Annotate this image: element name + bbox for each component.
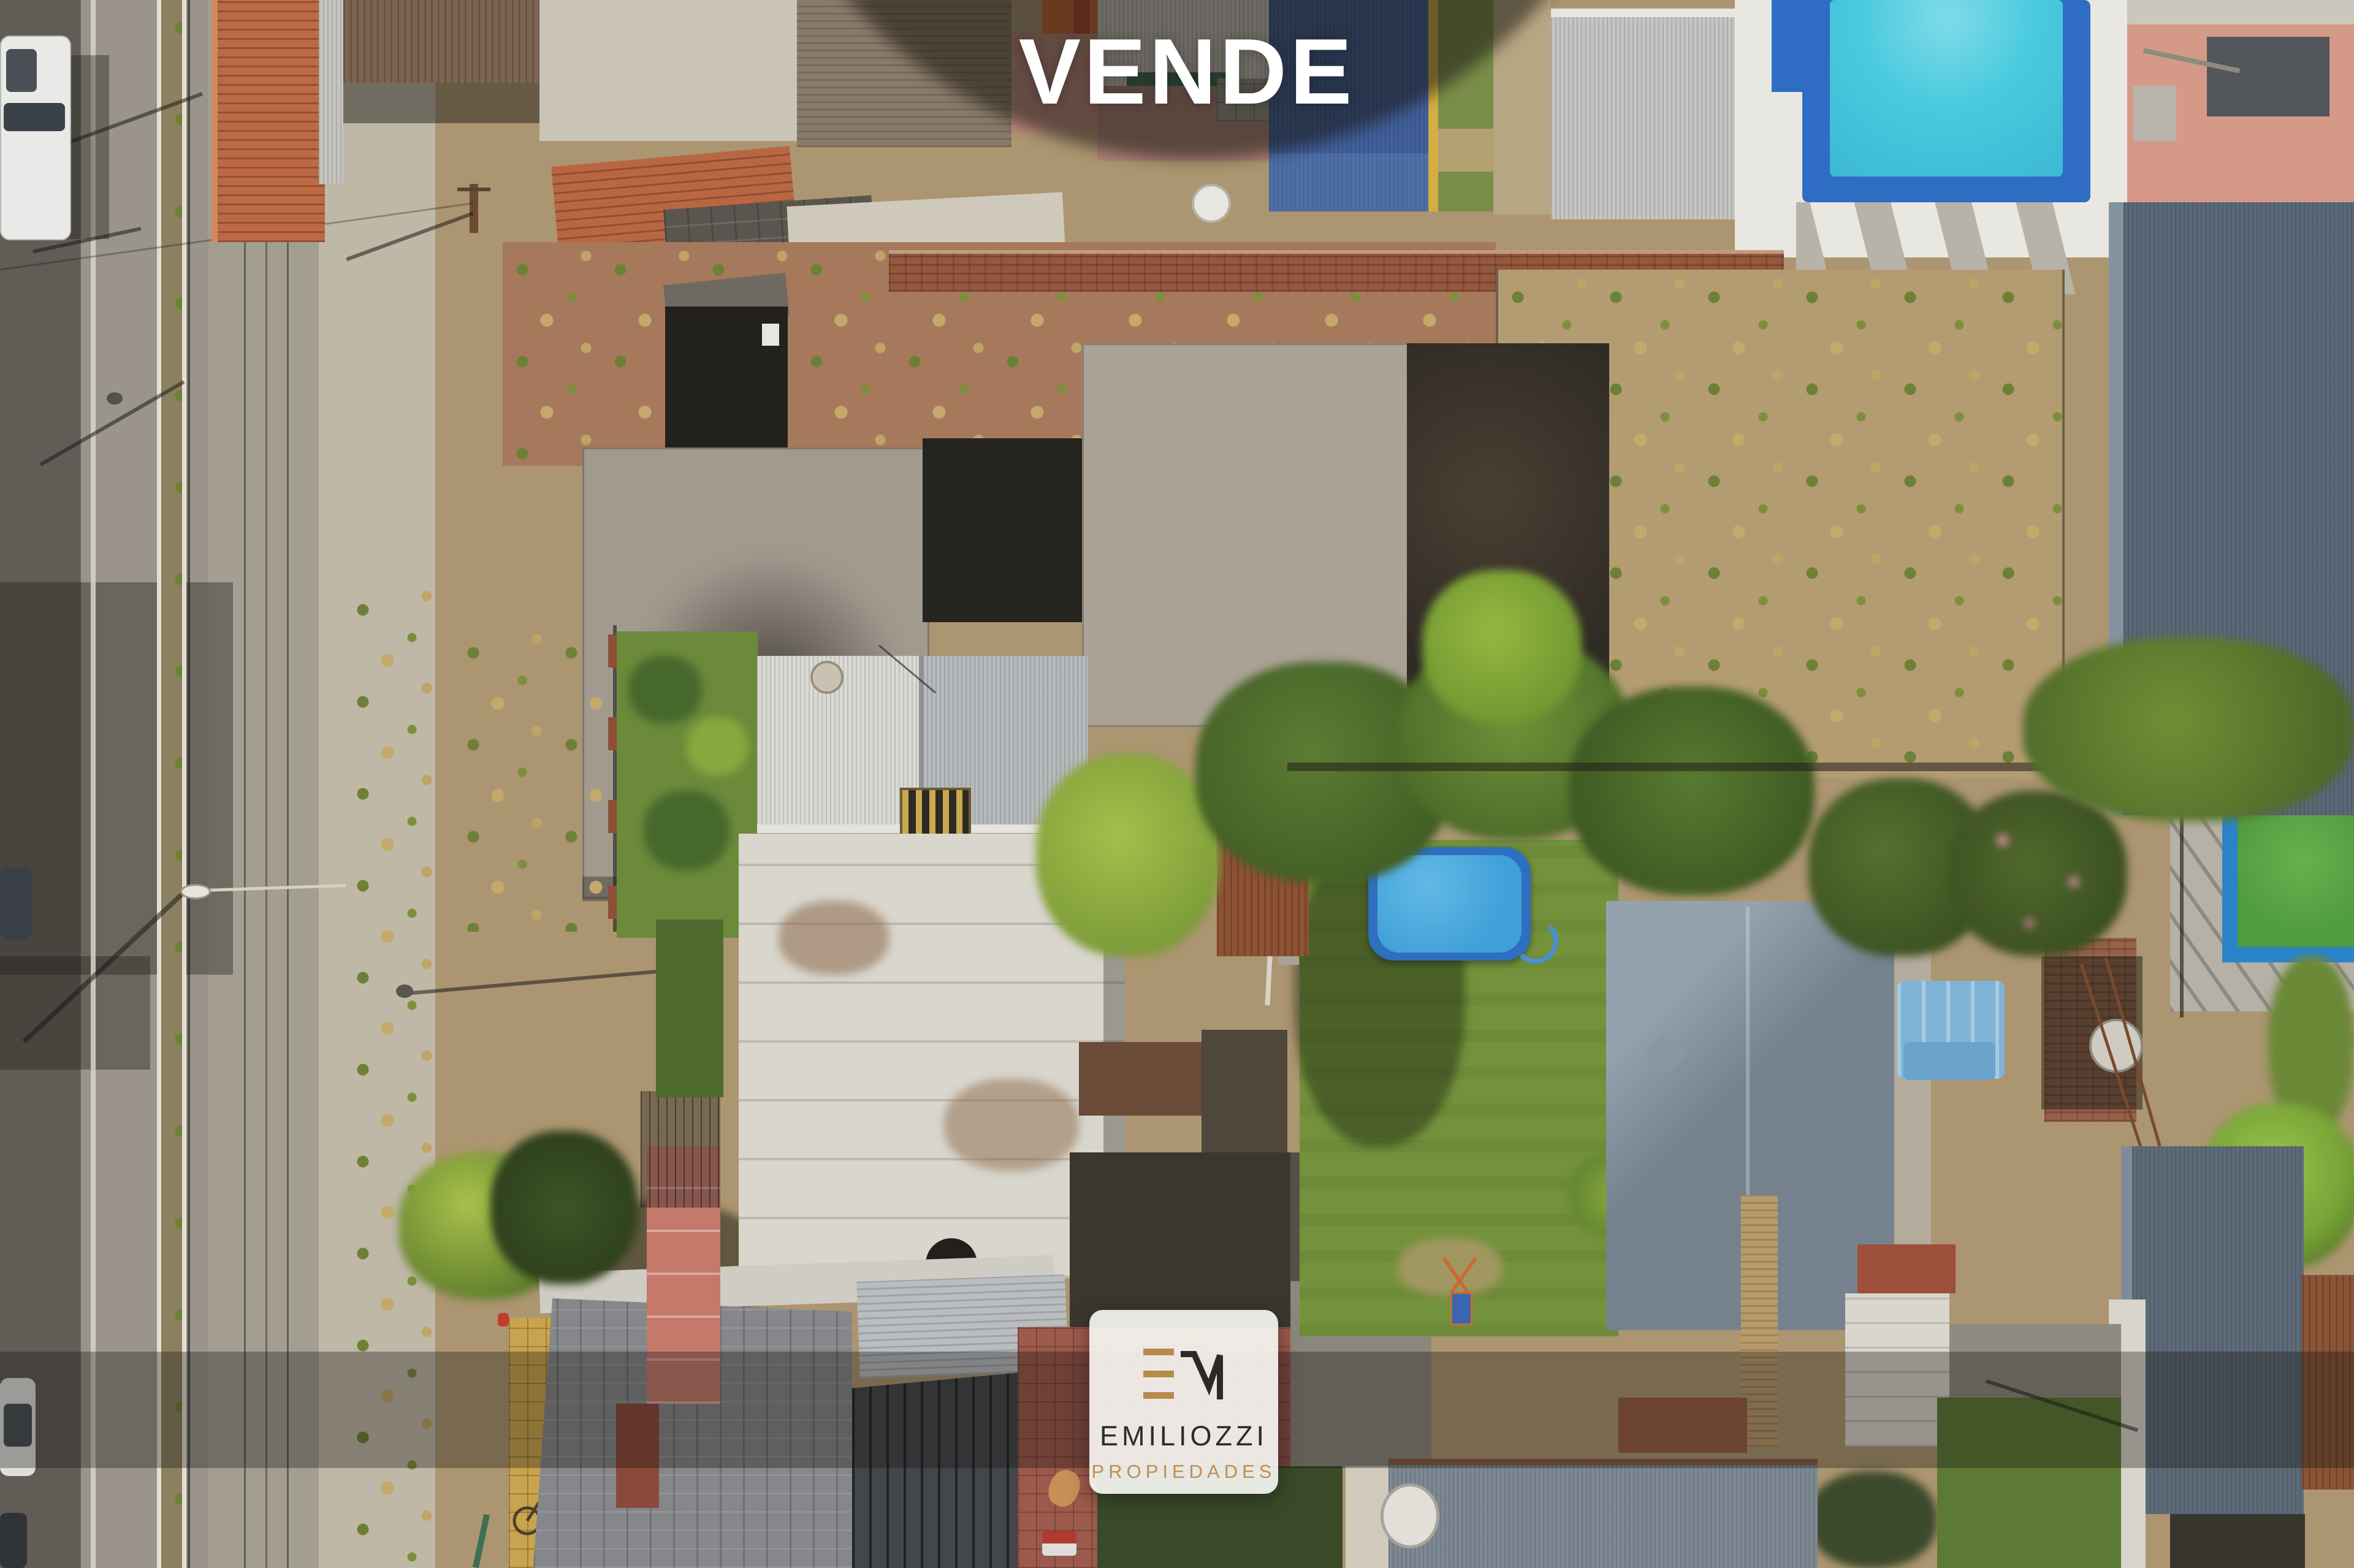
- van-windshield: [4, 103, 65, 131]
- oleander-tree-pink: [1949, 791, 2127, 956]
- red-roof-piece: [1857, 1244, 1956, 1293]
- paper-scrap: [762, 324, 779, 346]
- utility-pole-crossarm: [457, 188, 490, 191]
- median-gutter: [188, 0, 190, 1568]
- em-monogram-icon: [1143, 1348, 1225, 1399]
- water-tank: [810, 661, 844, 694]
- dark-car: [0, 1513, 27, 1568]
- roof-rust-stain: [944, 1079, 1079, 1171]
- brand-logo-card: EMILIOZZI PROPIEDADES: [1089, 1310, 1278, 1494]
- building-shadow-on-road: [0, 956, 150, 1070]
- median-curb-line: [182, 0, 186, 1568]
- dark-car: [0, 867, 32, 940]
- median-strip: [161, 0, 182, 1568]
- utility-pole: [470, 184, 478, 233]
- patio-void: [923, 438, 1082, 622]
- clay-tile-roof: [211, 0, 325, 242]
- tree-canopy: [1036, 754, 1220, 956]
- headline-text: VENDE: [1019, 18, 1355, 126]
- skylight-panel: [2133, 86, 2176, 141]
- garden-bush: [644, 791, 729, 870]
- building-shadow-on-road: [0, 582, 233, 975]
- corrugated-strip-roof: [319, 0, 343, 184]
- lap-pool-green-water: [2238, 803, 2354, 947]
- eave-shadow: [343, 83, 539, 123]
- pool-water: [1830, 0, 2063, 177]
- dark-roof-panel: [2207, 37, 2329, 116]
- pool-hose: [1513, 918, 1558, 964]
- monogram-e-bars: [1143, 1348, 1174, 1399]
- rust-shed-roof: [1079, 1042, 1202, 1116]
- tree-canopy: [2023, 637, 2354, 821]
- pool-water: [1377, 855, 1522, 953]
- van-shadow: [66, 55, 109, 239]
- water-tank: [1192, 184, 1231, 223]
- corrugated-roof-bottom: [1388, 1459, 1818, 1568]
- swing-seat: [1450, 1292, 1472, 1325]
- median-curb-line: [157, 0, 161, 1568]
- dark-patio: [2170, 1514, 2305, 1568]
- garden-path: [1438, 129, 1493, 172]
- dark-shed-roof: [1202, 1030, 1287, 1152]
- dark-courtyard: [1070, 1152, 1290, 1330]
- fire-hydrant: [498, 1313, 509, 1326]
- rust-corrugated-roof: [343, 0, 539, 83]
- brand-name: EMILIOZZI: [1100, 1420, 1268, 1452]
- lamp-arm-shadow-sidewalk: [405, 966, 698, 995]
- navy-roof-lit-band: [1269, 153, 1428, 211]
- roof-rust-stain: [779, 901, 889, 975]
- balcony-mesh: [641, 1091, 720, 1208]
- tree-canopy-bright: [1422, 570, 1582, 723]
- cooler-box: [1042, 1531, 1076, 1556]
- van-roof-window: [6, 49, 37, 92]
- monogram-m-glyph: [1181, 1348, 1225, 1399]
- dark-tree: [490, 1131, 638, 1284]
- pale-building-roof: [539, 0, 797, 141]
- blue-tarp: [1903, 1042, 1995, 1080]
- lamp-head-shadow: [396, 984, 413, 998]
- aerial-listing-photo: VENDE EMILIOZZI PROPIEDADES: [0, 0, 2354, 1568]
- garden-bush: [628, 656, 702, 723]
- pale-roofs: [2127, 0, 2354, 28]
- tree-canopy: [1569, 687, 1815, 895]
- lamp-head-shadow: [107, 392, 123, 405]
- street-lamp-head: [180, 884, 211, 899]
- long-boundary-wall: [1287, 763, 2139, 771]
- water-tank-large: [1381, 1483, 1439, 1548]
- sidewalk-weed-patch: [454, 625, 613, 932]
- hedge-row: [1808, 1471, 1937, 1568]
- green-post: [473, 1514, 490, 1568]
- shaded-front-grass: [656, 919, 723, 1097]
- brand-tagline: PROPIEDADES: [1092, 1461, 1276, 1483]
- garden-bush-bright: [687, 717, 748, 775]
